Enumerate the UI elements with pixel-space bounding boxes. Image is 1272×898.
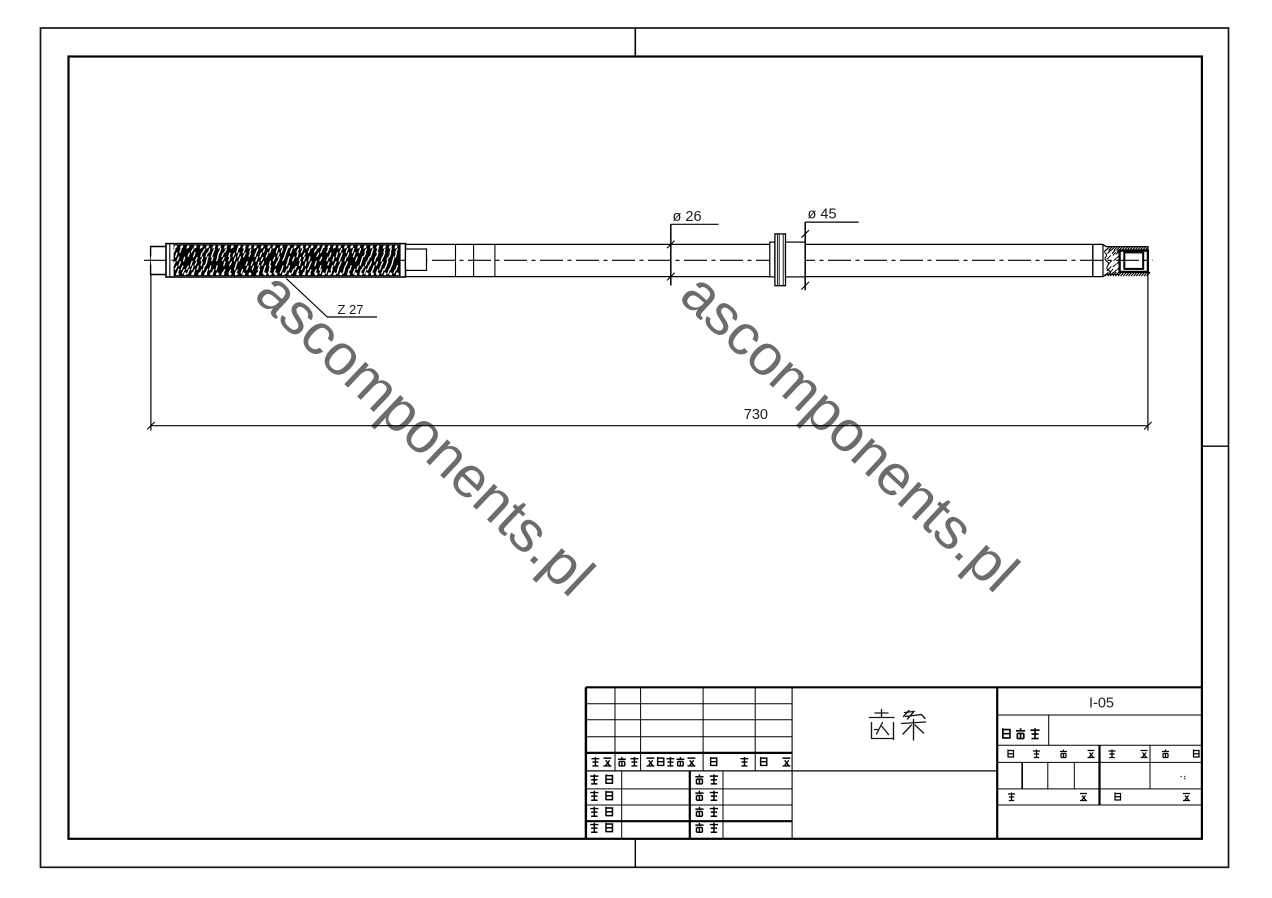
svg-text:ø 26: ø 26 — [673, 209, 702, 225]
svg-text:ø 45: ø 45 — [808, 207, 837, 223]
svg-text:I-05: I-05 — [1089, 696, 1114, 712]
svg-text:Z 27: Z 27 — [338, 302, 364, 317]
svg-text:730: 730 — [744, 407, 768, 423]
